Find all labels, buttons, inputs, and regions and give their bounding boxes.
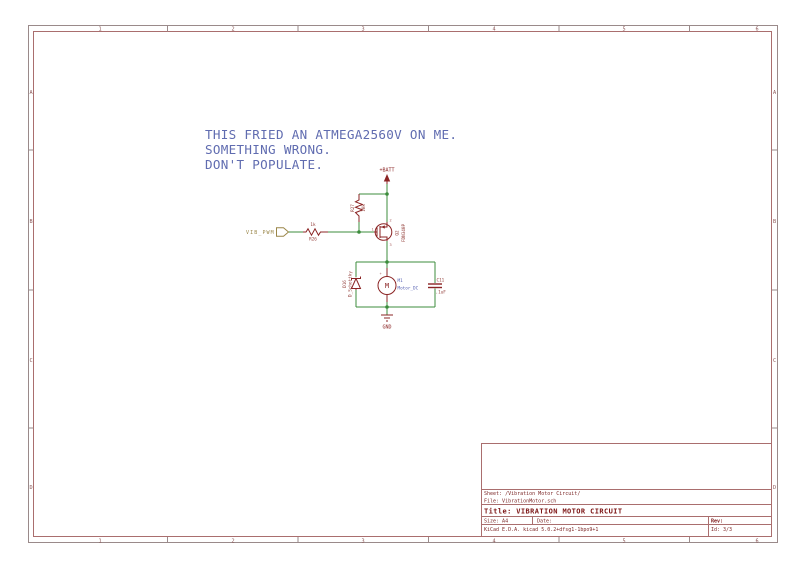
diode-d16[interactable]: D16 D_Schottky <box>342 271 361 297</box>
d16-reference: D16 <box>342 280 348 288</box>
row-label-left-c: C <box>29 358 32 364</box>
note-line-1[interactable]: THIS FRIED AN ATMEGA2560V ON ME. <box>205 127 457 142</box>
title-block: Sheet: /Vibration Motor Circuit/ File: V… <box>481 444 772 538</box>
power-symbol-vbatt[interactable]: +BATT <box>379 168 394 185</box>
q2-pin-1: 1 <box>372 228 374 232</box>
r27-reference: R27 <box>350 204 356 212</box>
wires[interactable] <box>289 184 436 315</box>
col-label-bottom-1: 1 <box>98 539 101 545</box>
hier-label-vib-pwm[interactable]: VIB_PWM <box>246 228 289 236</box>
frame-outer-rect <box>29 26 778 543</box>
vib-pwm-text: VIB_PWM <box>246 230 275 236</box>
warning-note[interactable]: THIS FRIED AN ATMEGA2560V ON ME. SOMETHI… <box>205 127 457 172</box>
paper-size: Size: A4 <box>484 519 508 525</box>
row-label-right-d: D <box>773 485 776 491</box>
generator-version: KiCad E.D.A. kicad 5.0.2+dfsg1-1bpo9+1 <box>484 527 598 533</box>
schematic-canvas: 1 2 3 4 5 6 1 2 3 4 5 6 A B C D A B C D … <box>0 0 800 566</box>
q2-arrow-icon <box>381 225 385 228</box>
rev-label: Rev: <box>711 519 723 525</box>
resistor-r27[interactable]: R27 10k <box>350 194 367 222</box>
frame-ticks <box>29 26 778 544</box>
resistor-r26[interactable]: 1k R26 <box>303 222 328 243</box>
col-label-top-5: 5 <box>622 27 625 33</box>
junction-dot <box>385 305 389 309</box>
row-label-left-d: D <box>29 485 32 491</box>
gnd-label: GND <box>382 325 391 331</box>
sheet-path: Sheet: /Vibration Motor Circuit/ <box>484 491 580 497</box>
row-label-right-a: A <box>773 90 777 96</box>
vbatt-label: +BATT <box>379 168 394 174</box>
schematic-sheet: 1 2 3 4 5 6 1 2 3 4 5 6 A B C D A B C D … <box>0 0 800 566</box>
sheet-title: Title: VIBRATION MOTOR CIRCUIT <box>484 508 622 516</box>
r27-value: 10k <box>361 204 367 212</box>
col-label-bottom-5: 5 <box>622 539 625 545</box>
date-field: Date: <box>537 519 552 525</box>
r26-value: 1k <box>310 222 316 228</box>
col-label-top-3: 3 <box>361 27 364 33</box>
m1-motor-letter: M <box>385 282 389 290</box>
capacitor-c11[interactable]: C11 .1uF <box>428 278 446 296</box>
sheet-border-frame: 1 2 3 4 5 6 1 2 3 4 5 6 A B C D A B C D <box>29 26 778 545</box>
q2-pin-2: 2 <box>390 219 392 223</box>
row-label-left-b: B <box>29 219 32 225</box>
q2-value: FDN340P <box>401 224 407 243</box>
vbatt-arrow-icon <box>384 174 390 182</box>
m1-plus-mark: + <box>380 272 383 276</box>
motor-m1[interactable]: + M M1 Motor_DC <box>378 268 419 302</box>
vibration-motor-circuit: +BATT R27 10k 1k R26 2 1 3 Q2 FDN34 <box>246 168 446 331</box>
q2-pin-3: 3 <box>390 243 392 247</box>
col-label-bottom-3: 3 <box>361 539 364 545</box>
frame-inner-rect <box>34 32 772 537</box>
junction-dot <box>357 230 361 234</box>
m1-reference: M1 <box>398 278 404 284</box>
row-label-right-c: C <box>773 358 776 364</box>
d16-value: D_Schottky <box>348 271 354 297</box>
junction-dot <box>385 260 389 264</box>
col-label-top-1: 1 <box>98 27 101 33</box>
file-name: File: VibrationMotor.sch <box>484 499 556 505</box>
c11-value: .1uF <box>436 290 447 296</box>
r26-zigzag <box>303 229 328 235</box>
col-label-bottom-6: 6 <box>755 539 758 545</box>
m1-value: Motor_DC <box>398 286 419 292</box>
vib-pwm-tag-icon <box>277 228 289 236</box>
mosfet-q2[interactable]: 2 1 3 Q2 FDN340P <box>372 219 408 248</box>
q2-reference: Q2 <box>395 230 401 236</box>
r26-reference: R26 <box>309 237 317 243</box>
col-label-top-4: 4 <box>492 27 495 33</box>
col-label-top-6: 6 <box>755 27 758 33</box>
col-label-bottom-2: 2 <box>231 539 234 545</box>
row-label-left-a: A <box>29 90 33 96</box>
sheet-id: Id: 3/3 <box>711 527 732 533</box>
row-label-right-b: B <box>773 219 776 225</box>
col-label-bottom-4: 4 <box>492 539 495 545</box>
note-line-2[interactable]: SOMETHING WRONG. <box>205 142 331 157</box>
note-line-3[interactable]: DON'T POPULATE. <box>205 157 323 172</box>
junction-dot <box>385 192 389 196</box>
power-symbol-gnd[interactable]: GND <box>381 315 393 331</box>
c11-reference: C11 <box>437 278 445 284</box>
col-label-top-2: 2 <box>231 27 234 33</box>
